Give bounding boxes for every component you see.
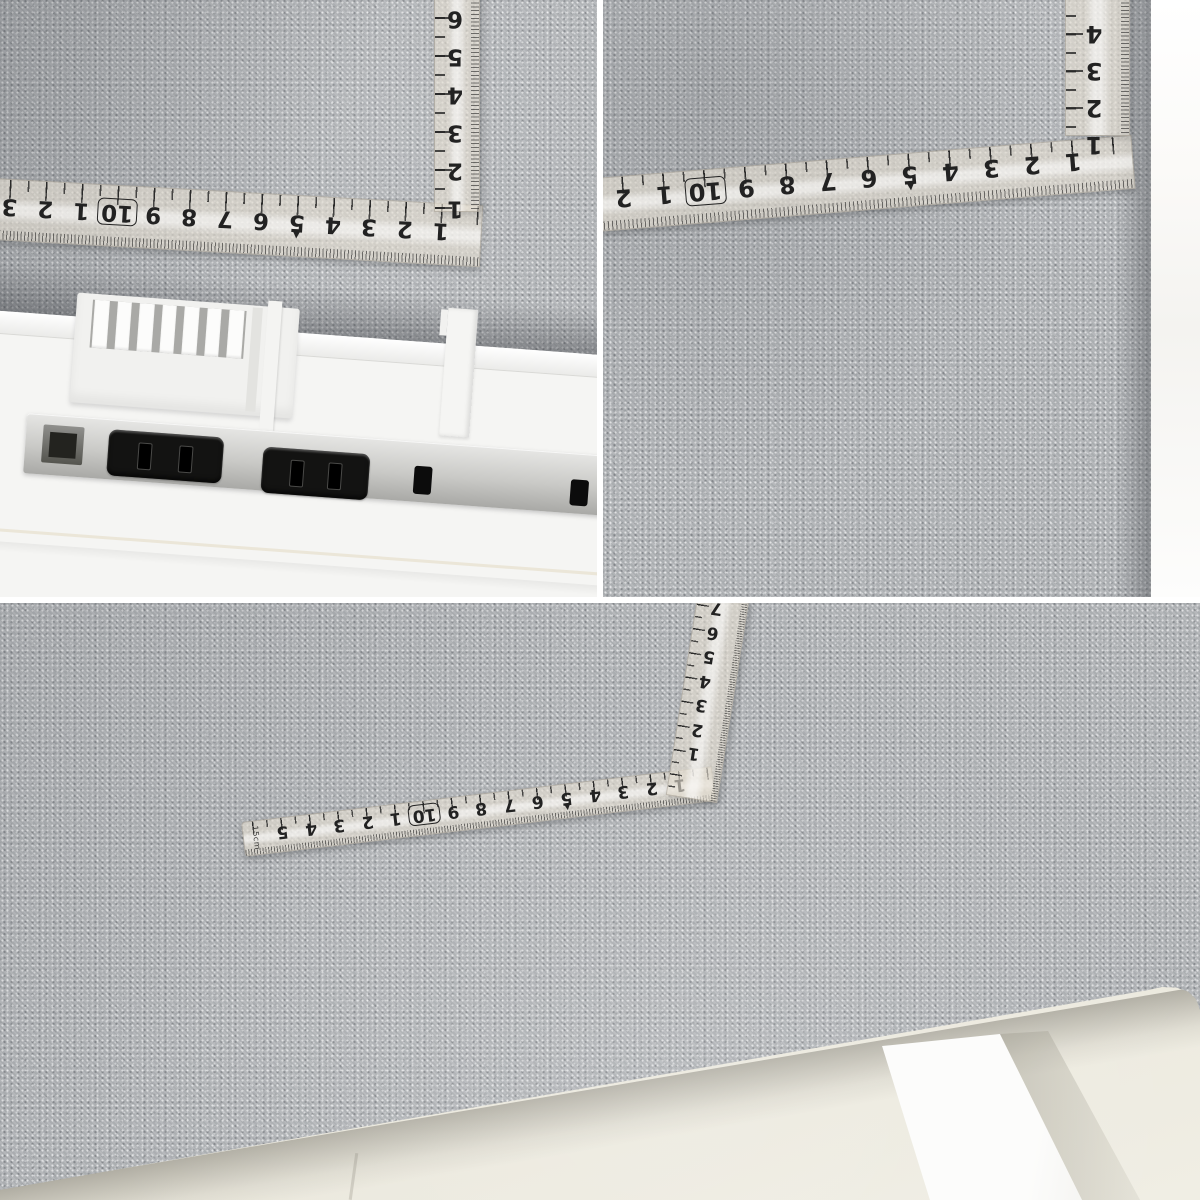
lid-slats xyxy=(90,300,247,359)
ruler-number: 2 xyxy=(37,196,54,220)
lid-side-tab xyxy=(439,308,478,438)
ruler-number: 8 xyxy=(778,172,797,197)
ruler-number: 8 xyxy=(181,204,198,228)
ruler-number: 6 xyxy=(252,208,269,232)
ruler-number: 2 xyxy=(447,159,463,182)
ruler-number: 10 xyxy=(97,197,138,226)
ruler-number: 9 xyxy=(446,802,460,820)
ruler-number: 4 xyxy=(324,212,341,236)
outlet-small-slot xyxy=(569,479,589,506)
ruler-number: 5 xyxy=(275,822,289,840)
ruler-number: 3 xyxy=(360,214,377,238)
ruler-number: 1 xyxy=(1064,149,1083,174)
ruler-number: 3 xyxy=(694,695,708,714)
ruler-five-marker: ▼ xyxy=(293,231,300,240)
ruler-number: 5 xyxy=(447,45,463,68)
ruler-number: 10 xyxy=(684,176,728,207)
lid-ridge xyxy=(245,307,263,411)
power-outlet xyxy=(106,429,224,483)
outlet-small-slot xyxy=(413,466,433,495)
ruler-number: 2 xyxy=(361,812,375,830)
ruler-number: 2 xyxy=(614,185,633,210)
ruler-number: 6 xyxy=(860,165,879,190)
ruler-five-marker: ▼ xyxy=(907,183,915,193)
ruler-number: 9 xyxy=(145,202,162,226)
ruler-number: 4 xyxy=(588,785,602,803)
photo-top-left: 32110987654321▼ 654321 xyxy=(0,0,597,597)
ruler-number: 4 xyxy=(447,83,463,106)
ruler-number: 3 xyxy=(616,782,630,800)
ruler-number: 1 xyxy=(1086,133,1103,157)
ruler-number: 5 xyxy=(702,647,716,666)
ruler-number: 3 xyxy=(1,194,18,218)
ruler-number: 4 xyxy=(941,159,960,184)
ruler-number: 2 xyxy=(396,216,413,240)
ruler-number: 4 xyxy=(304,819,318,837)
ruler-number: 2 xyxy=(1086,96,1103,120)
outlet-strip xyxy=(23,413,597,515)
ruler-number: 6 xyxy=(447,7,463,30)
ruler-number: 9 xyxy=(737,175,756,200)
ruler-number: 1 xyxy=(73,198,90,222)
photo-top-right: 2110987654321▼ 4321 xyxy=(603,0,1200,597)
ruler-number: 3 xyxy=(447,121,463,144)
ruler-number: 1 xyxy=(389,809,403,827)
photo-collage: 32110987654321▼ 654321 xyxy=(0,0,1200,1200)
ruler-number: 4 xyxy=(698,671,712,690)
desk-edge xyxy=(0,310,597,597)
power-switch xyxy=(41,424,85,465)
photo-bottom: 5432110987654321▼ 15cm 7654321 xyxy=(0,603,1200,1200)
ruler-number: 1 xyxy=(432,218,449,242)
ruler-number: 7 xyxy=(503,795,517,813)
ruler-number: 7 xyxy=(709,603,723,617)
ruler-number: 6 xyxy=(531,792,545,810)
ruler-number: 3 xyxy=(1086,59,1103,83)
ruler-number: 3 xyxy=(332,815,346,833)
ruler-number: 3 xyxy=(982,156,1001,181)
ruler-number: 10 xyxy=(407,802,441,827)
ruler-number: 1 xyxy=(447,197,463,220)
ruler-number: 2 xyxy=(645,778,659,796)
ruler-scale-numbers: 654321 xyxy=(435,0,479,211)
ruler-number: 2 xyxy=(1023,152,1042,177)
ruler-number: 7 xyxy=(819,169,838,194)
ruler-number: 1 xyxy=(687,743,701,762)
ruler-number: 7 xyxy=(216,206,233,230)
carpenter-square-vertical-arm: 4321 xyxy=(1065,0,1130,136)
ruler-five-marker: ▼ xyxy=(564,803,572,813)
ruler-scale-numbers: 4321 xyxy=(1066,0,1129,135)
ruler-number: 6 xyxy=(706,623,720,642)
background-wall xyxy=(1151,0,1200,597)
ruler-number: 4 xyxy=(1086,22,1103,46)
power-outlet xyxy=(260,447,370,501)
ruler-number: 8 xyxy=(474,798,488,816)
carpenter-square-vertical-arm: 654321 xyxy=(434,0,480,212)
ruler-number: 1 xyxy=(655,182,674,207)
ruler-number: 2 xyxy=(690,719,704,738)
